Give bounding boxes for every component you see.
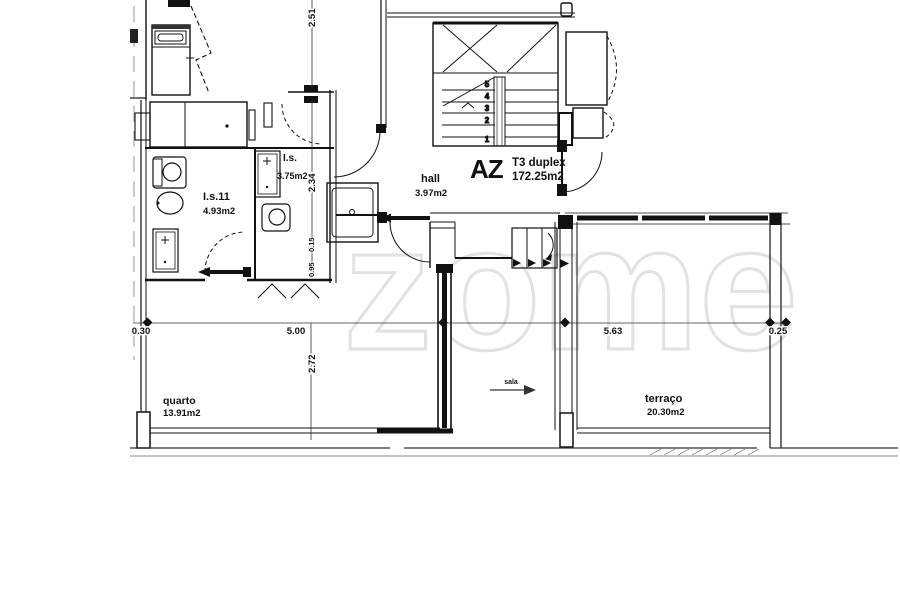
room-area-hall: 3.97m2 [415,189,447,199]
unit-area: 172.25m2 [512,172,564,184]
stair-step-2: 2 [485,116,490,125]
dim-5-00: 5.00 [287,326,306,337]
unit-code: AZ [470,156,503,182]
stair-step-4: 4 [485,92,490,101]
dim-0-15: 0.15 [307,237,316,252]
room-label-bedroom: quarto [163,396,196,407]
dim-5-63: 5.63 [604,326,623,337]
room-area-bathroom-main: 4.93m2 [203,207,235,217]
dim-0-95: 0.95 [307,262,316,277]
dim-2-72: 2.72 [307,355,318,374]
dim-0-25: 0.25 [769,326,788,337]
dim-2-34: 2.34 [307,173,318,192]
staircase: 5 4 3 2 1 [433,23,558,146]
room-label-hall: hall [421,174,440,185]
stair-step-3: 3 [485,104,490,113]
room-area-bedroom: 13.91m2 [163,409,201,419]
unit-type: T3 duplex [512,158,566,170]
floorplan-canvas: zome [0,0,900,597]
wardrobes [135,6,319,298]
room-area-terrace: 20.30m2 [647,408,685,418]
room-label-bathroom-main: I.s.11 [203,192,230,203]
stair-step-5: 5 [485,80,490,89]
living-pointer-label: sala [504,379,518,386]
room-area-bathroom-small: 3.75m2 [277,172,308,181]
dim-0-30: 0.30 [132,326,151,337]
floorplan-drawing: zome [0,0,900,597]
room-label-terrace: terraço [645,394,682,405]
stair-step-1: 1 [485,135,490,144]
room-label-bathroom-small: I.s. [283,154,297,164]
dim-2-51: 2.51 [307,8,318,27]
